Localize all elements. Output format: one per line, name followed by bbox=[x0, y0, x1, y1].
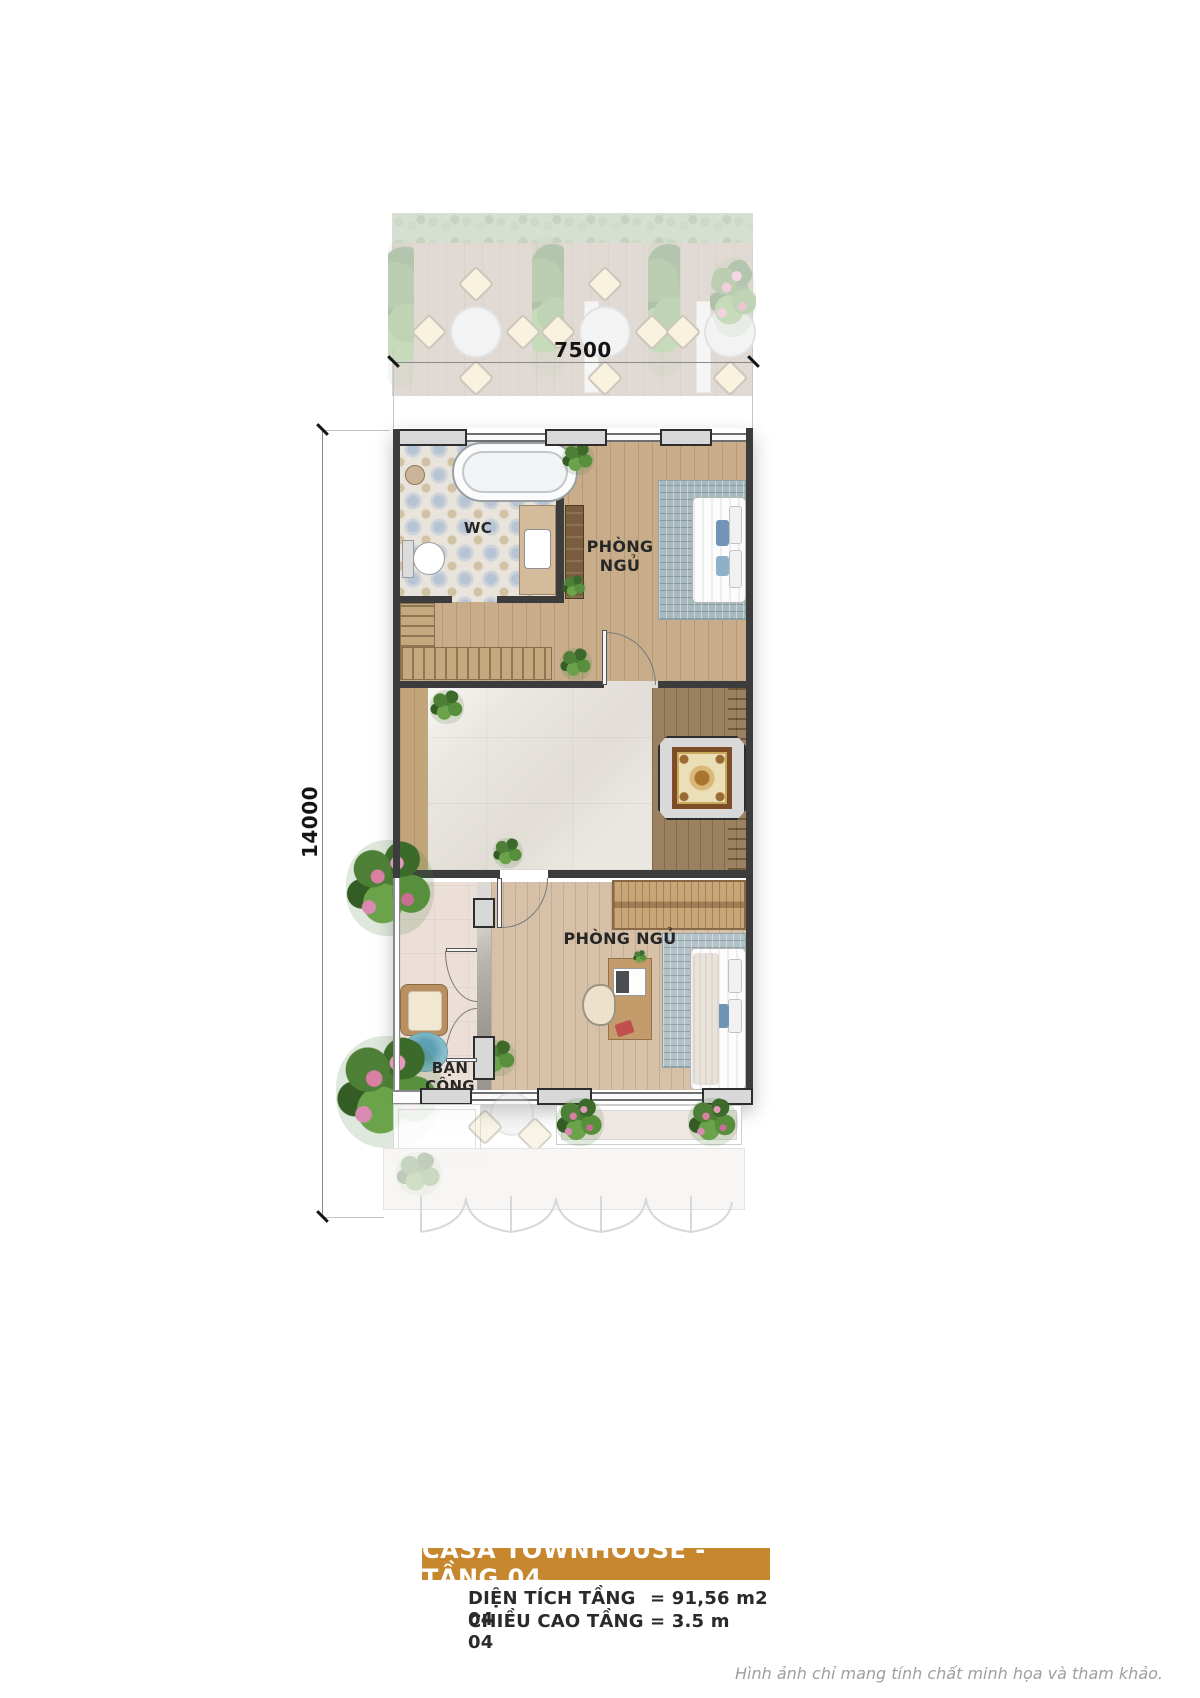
bedroom2-label: PHÒNG NGỦ bbox=[560, 930, 680, 949]
desk-chair bbox=[582, 984, 616, 1026]
balcony-label-line1: BẠN bbox=[410, 1060, 490, 1078]
window-ac-block bbox=[420, 1088, 472, 1105]
sheet-title: CASA TOWNHOUSE - TẦNG 04 bbox=[422, 1536, 770, 1592]
corner-wall bbox=[746, 428, 753, 446]
floor-plan-sheet: 7500 14000 WC PHÒNG NGỦ bbox=[0, 0, 1200, 1698]
faded-plant bbox=[396, 1152, 442, 1196]
right-wall bbox=[746, 446, 753, 1104]
bed-blue-throw bbox=[716, 520, 729, 546]
bedroom1-label-line1: PHÒNG bbox=[580, 538, 660, 557]
bedroom1-label-line2: NGỦ bbox=[580, 557, 660, 576]
elevator-carpet bbox=[672, 747, 732, 809]
bedroom2-plant bbox=[493, 838, 523, 868]
terrace-hedge bbox=[392, 213, 753, 243]
terrace-plant bbox=[388, 239, 414, 389]
faded-lower-chairs bbox=[470, 1092, 580, 1152]
balcony-plant bbox=[346, 840, 434, 936]
stair-run bbox=[400, 647, 552, 680]
terrace-table bbox=[450, 306, 502, 358]
balcony-armchair bbox=[400, 984, 448, 1036]
spec-row-height: CHIỀU CAO TẦNG 04 = 3.5 m bbox=[468, 1611, 768, 1653]
armchair-cushion bbox=[408, 991, 442, 1031]
window-ac-block bbox=[393, 429, 467, 446]
bedroom1-plant bbox=[560, 648, 592, 680]
wc-wall-bottom bbox=[400, 596, 452, 603]
dimension-line-height bbox=[322, 430, 323, 1217]
window-glazing bbox=[712, 433, 746, 442]
extension-line bbox=[322, 1217, 384, 1218]
interior-wall bbox=[548, 870, 746, 878]
wc-wall-bottom bbox=[497, 596, 564, 603]
divider-wall-block bbox=[473, 898, 495, 928]
floor-height-label: CHIỀU CAO TẦNG 04 bbox=[468, 1611, 650, 1653]
dimension-height-label: 14000 bbox=[298, 782, 322, 862]
laptop bbox=[613, 968, 646, 996]
laptop-screen bbox=[616, 971, 629, 993]
extension-line bbox=[322, 430, 390, 431]
interior-wall bbox=[400, 681, 604, 688]
bathtub-basin bbox=[462, 451, 568, 493]
window-ac-block bbox=[660, 429, 712, 446]
bedroom1-plant bbox=[562, 443, 594, 475]
desk-plant bbox=[633, 950, 647, 964]
bedroom1-bed bbox=[692, 497, 746, 603]
title-bar: CASA TOWNHOUSE - TẦNG 04 bbox=[422, 1548, 770, 1580]
balcony-railing-left bbox=[393, 878, 400, 1104]
wardrobe bbox=[612, 880, 746, 930]
dimension-line-width bbox=[393, 362, 753, 363]
window-glazing bbox=[467, 433, 545, 442]
bed-pillow bbox=[728, 999, 742, 1033]
disclaimer-note: Hình ảnh chỉ mang tính chất minh họa và … bbox=[735, 1664, 1163, 1683]
wc-label: WC bbox=[448, 520, 508, 538]
bed-blue-throw bbox=[716, 556, 729, 576]
hall-plant bbox=[430, 690, 464, 724]
roof-terrace-faded bbox=[392, 213, 753, 396]
toilet-bowl bbox=[413, 542, 445, 575]
bedroom1-plant bbox=[562, 575, 586, 599]
interior-wall bbox=[658, 681, 746, 688]
bed-blanket-fold bbox=[693, 953, 719, 1085]
dimension-width-label: 7500 bbox=[543, 338, 623, 362]
bedroom2-bed bbox=[690, 948, 746, 1090]
stair-flight-upper bbox=[400, 603, 435, 648]
window-glazing bbox=[592, 1092, 702, 1101]
terrace-plant bbox=[648, 237, 680, 377]
awning-scallops bbox=[383, 1196, 745, 1236]
bed-pillow bbox=[728, 959, 742, 993]
bedroom1-label: PHÒNG NGỦ bbox=[580, 538, 660, 576]
planter-plant bbox=[688, 1098, 738, 1146]
window-ac-block bbox=[545, 429, 607, 446]
floor-height-value: = 3.5 m bbox=[650, 1611, 730, 1653]
balcony-railing-bottom bbox=[393, 1090, 420, 1104]
bathtub bbox=[452, 442, 578, 502]
window-glazing bbox=[607, 433, 660, 442]
left-wall bbox=[393, 429, 400, 878]
vanity-sink bbox=[524, 529, 551, 569]
terrace-flower-bush bbox=[710, 257, 756, 337]
bed-pillow bbox=[729, 550, 742, 588]
wc-stool bbox=[405, 465, 425, 485]
bed-pillow bbox=[729, 506, 742, 544]
